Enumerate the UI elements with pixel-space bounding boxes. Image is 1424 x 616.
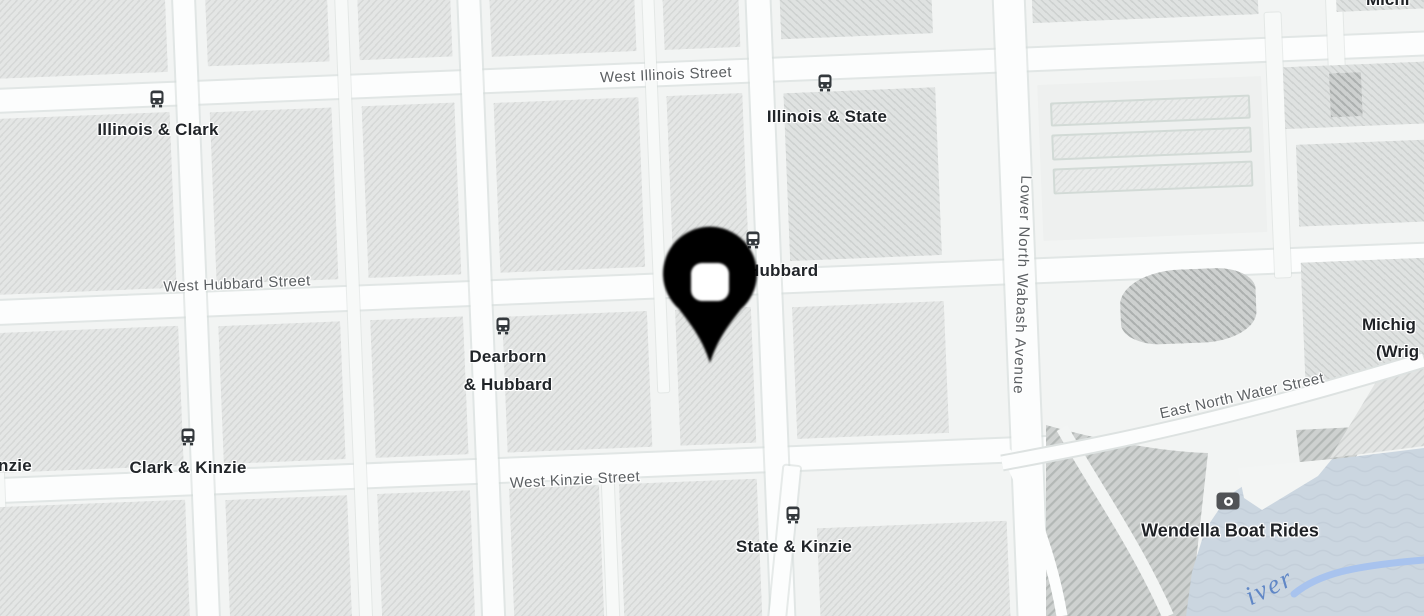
map-canvas[interactable]: West Illinois Street West Hubbard Street…: [0, 0, 1424, 616]
transit-stop-state-kinzie[interactable]: State & Kinzie: [736, 537, 852, 557]
poi-label-line2: (Wrig: [1376, 342, 1419, 361]
bus-stop-icon[interactable]: [181, 428, 196, 446]
location-pin-marker[interactable]: [655, 225, 765, 370]
bus-stop-icon[interactable]: [818, 74, 833, 92]
stop-label-line1: Dearborn: [469, 347, 546, 366]
edge-label-top-right: Michi: [1366, 0, 1409, 10]
bus-stop-icon[interactable]: [150, 90, 165, 108]
edge-label-kinzie-fragment: nzie: [0, 456, 32, 476]
transit-stop-clark-kinzie[interactable]: Clark & Kinzie: [129, 458, 246, 478]
transit-stop-illinois-clark[interactable]: Illinois & Clark: [97, 120, 218, 140]
poi-label-line1: Michig: [1362, 315, 1416, 334]
attraction-icon[interactable]: [1217, 493, 1240, 510]
poi-wendella-boat-rides[interactable]: Wendella Boat Rides: [1141, 521, 1319, 542]
poi-michigan-wrigley[interactable]: Michig (Wrig: [1362, 311, 1419, 365]
transit-stop-illinois-state[interactable]: Illinois & State: [767, 107, 887, 127]
transit-stop-dearborn-hubbard[interactable]: Dearborn & Hubbard: [464, 343, 553, 399]
bus-stop-icon[interactable]: [786, 506, 801, 524]
stop-label-line2: & Hubbard: [464, 375, 553, 394]
bus-stop-icon[interactable]: [496, 317, 511, 335]
